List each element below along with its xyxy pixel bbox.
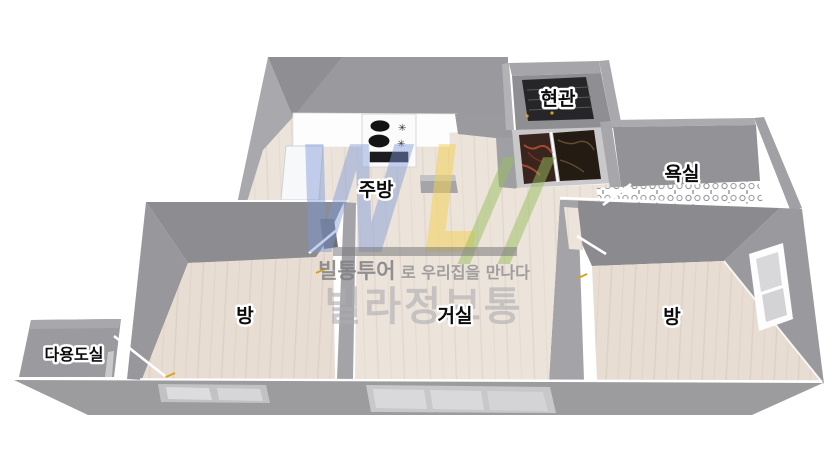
glass-pane [430, 390, 484, 410]
room-left-window [158, 384, 270, 403]
room-label-entrance: 현관 [541, 88, 576, 110]
room-label-bathroom: 욕실 [665, 163, 700, 185]
watermark-brand: 빌라정보통 [325, 284, 524, 330]
watermark-tagline-rest: 로 우리집을 만나다 [401, 263, 530, 282]
room-label-room-right: 방 [663, 306, 681, 328]
living-room-sliding-door [366, 385, 556, 413]
floorplan-canvas: ✳ ✳ [0, 0, 840, 472]
window-pane [217, 388, 263, 401]
watermark: W L // 빌통투어 로 우리집을 만나다 빌라정보통 [294, 115, 556, 330]
front-wall-block [14, 380, 823, 416]
glass-pane [487, 391, 548, 411]
utility-room-top-face [29, 319, 121, 329]
floorplan-page: ✳ ✳ [0, 0, 840, 472]
room-label-room-left: 방 [236, 305, 254, 327]
watermark-logo-slashes: // [457, 131, 556, 283]
glass-pane [373, 389, 427, 409]
foyer-marble-right-panel [553, 130, 601, 181]
room-right-block [549, 198, 824, 384]
watermark-tagline-brand: 빌통투어 [318, 259, 395, 283]
room-label-living: 거실 [438, 305, 473, 327]
watermark-tagline: 빌통투어 로 우리집을 만나다 [318, 259, 530, 283]
room-label-kitchen: 주방 [359, 179, 394, 201]
room-label-utility: 다용도실 [45, 345, 104, 364]
watermark-divider-bar [333, 247, 517, 256]
window-pane [166, 387, 212, 400]
